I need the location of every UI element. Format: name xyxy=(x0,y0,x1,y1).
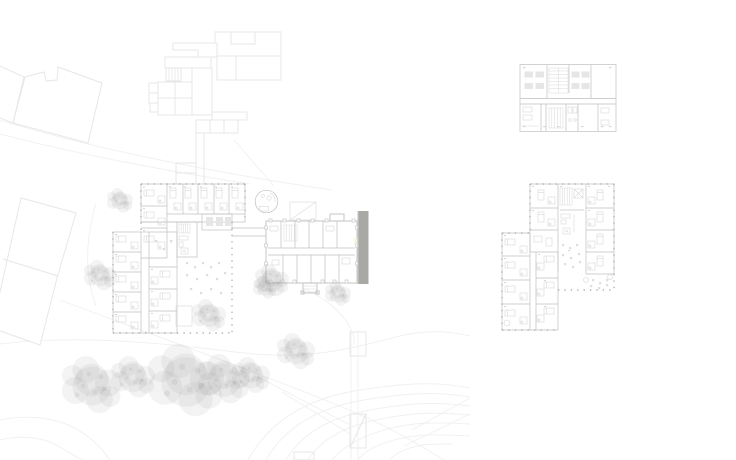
north-building-complex xyxy=(149,32,281,184)
dining-room xyxy=(202,214,232,230)
stair-core xyxy=(560,188,584,234)
stair-hatch-icon xyxy=(549,108,563,128)
upper-floor-plan xyxy=(502,184,614,330)
plan-sheet xyxy=(0,0,736,460)
neighbor-buildings xyxy=(0,66,102,345)
facade-colonnades xyxy=(113,184,245,333)
entry-canopy xyxy=(290,202,316,220)
patient-beds-west xyxy=(116,236,170,329)
day-room-tables xyxy=(525,72,590,90)
round-pavilion xyxy=(255,190,278,213)
living-room-furniture xyxy=(534,236,552,246)
north-wing xyxy=(141,184,245,258)
site-contour-lines xyxy=(0,120,470,460)
shelf-hatch-icon xyxy=(549,68,568,93)
small-floor-plan xyxy=(520,65,616,132)
kitchen-core xyxy=(177,222,197,257)
commons-furniture xyxy=(155,240,172,250)
terrace xyxy=(558,274,614,290)
main-building-ground-floor xyxy=(113,184,369,333)
west-wing xyxy=(113,232,177,333)
stair-hatch-icon xyxy=(166,68,181,81)
connector-corridor xyxy=(232,228,266,236)
dining-chair-dots xyxy=(562,244,581,268)
